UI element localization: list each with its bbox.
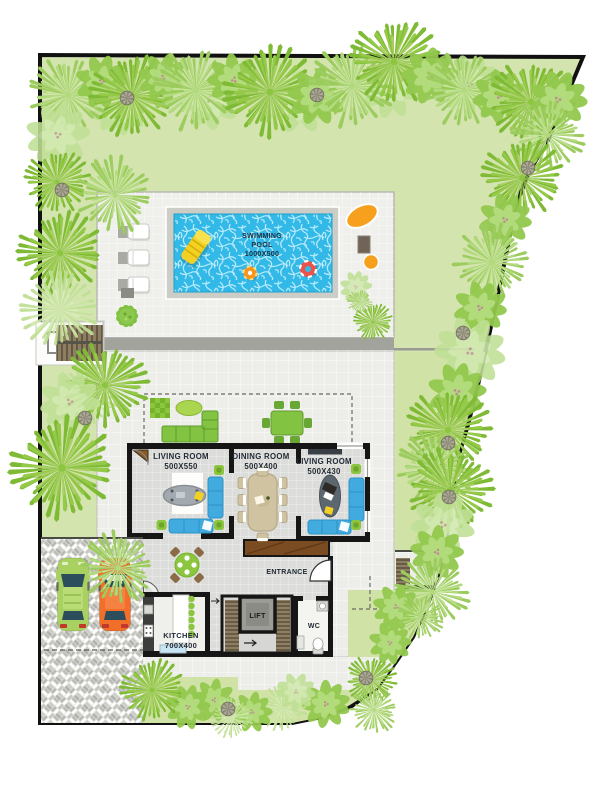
svg-text:POOL: POOL — [251, 240, 273, 249]
svg-text:LIVING ROOM: LIVING ROOM — [153, 452, 209, 461]
svg-text:500X430: 500X430 — [307, 467, 341, 476]
svg-text:WC: WC — [308, 623, 320, 630]
svg-text:ENTRANCE: ENTRANCE — [266, 569, 307, 576]
svg-text:SWIMMING: SWIMMING — [242, 231, 282, 240]
svg-text:500X550: 500X550 — [164, 462, 198, 471]
svg-text:DINING ROOM: DINING ROOM — [232, 452, 289, 461]
svg-text:KITCHEN: KITCHEN — [163, 631, 198, 640]
svg-text:LIFT: LIFT — [249, 611, 266, 620]
svg-text:LIVING ROOM: LIVING ROOM — [296, 457, 352, 466]
svg-text:1000X500: 1000X500 — [245, 249, 279, 258]
svg-text:700X400: 700X400 — [165, 641, 197, 650]
